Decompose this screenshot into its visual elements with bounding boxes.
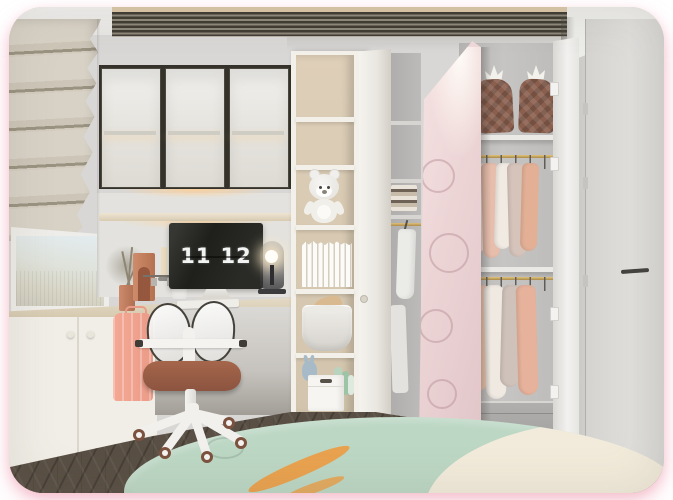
wardrobe-hinge [550,82,559,96]
teddy-nose [322,190,327,194]
monitor-flip-clock: 11 12 [169,223,263,289]
armrest-cap [135,340,143,347]
basket-rim [302,305,352,314]
cabinet-shelf [232,131,284,135]
wardrobe-door-knob [360,295,368,303]
glass-cabinet-door [165,68,225,188]
box-flap-line [308,386,344,387]
door-circle-detail [419,309,453,343]
room-photo: 11 12 [9,7,664,493]
desk-lamp [259,241,287,295]
rail-accessory [151,278,157,286]
under-cabinet-led [101,189,289,201]
door-circle-detail [429,233,469,273]
wardrobe-shelf [389,121,421,125]
open-shelf-unit [291,51,367,423]
chair-seat-cushion [143,361,241,391]
lamp-stem [270,265,274,285]
photo-canvas: 11 12 [0,0,673,500]
teddy-belly [317,205,331,219]
plush-ear [309,355,315,365]
shelf-unit-interior [296,55,354,415]
glass-upper-cabinets [99,65,291,189]
fabric-basket [302,305,352,351]
garment [516,285,539,395]
book-row [302,241,352,287]
cabinet-knob [87,331,94,338]
wardrobe-hinge [550,385,559,399]
pink-door-shadow [481,47,491,457]
glass-cabinet-door [101,68,161,188]
flip-clock-split-line [185,256,247,258]
door-circle-detail [427,379,457,409]
hanging-white-shirt [396,229,416,300]
wardrobe-mid-interior [389,53,421,453]
toy-box [308,375,344,411]
wardrobe-shelf [389,179,421,183]
lamp-bulb [265,250,278,263]
armrest-cap [239,340,247,347]
rug-cream-shape [417,417,664,493]
cabinet-shelf [168,131,220,135]
folded-clothes-stack [391,185,417,211]
ac-vent-grille [112,7,568,37]
rug-orange-leaf [245,441,353,493]
window [11,227,109,313]
floating-shelf [99,213,297,221]
shelf-board [296,225,354,230]
chair-armrest-bar [137,339,245,348]
room-door-hinge [583,275,588,287]
glass-cabinet-door [229,68,289,188]
cabinet-shelf [104,131,156,135]
bottle [348,375,354,395]
room-door-hinge [583,103,588,115]
shelf-board [296,117,354,122]
pink-wardrobe-door [419,41,481,459]
shelf-board [296,165,354,170]
kids-desk-chair [127,297,259,465]
wardrobe-hinge [550,157,559,171]
window-city-haze [16,271,104,306]
garment [520,163,539,251]
hanging-garment [389,305,408,394]
wardrobe-open-door-white [359,49,391,453]
box-slot [320,379,332,383]
shelf-board [296,289,354,294]
cabinet-knob [67,331,74,338]
chair-star-base [127,401,259,465]
door-circle-detail [421,159,455,193]
teddy-eye [319,186,322,189]
room-door-hinge [583,177,588,189]
teddy-eye [327,186,330,189]
lamp-base [258,289,286,294]
wardrobe-shelf [389,215,421,219]
chair-backrest [189,300,237,365]
wardrobe-hinge [550,307,559,321]
